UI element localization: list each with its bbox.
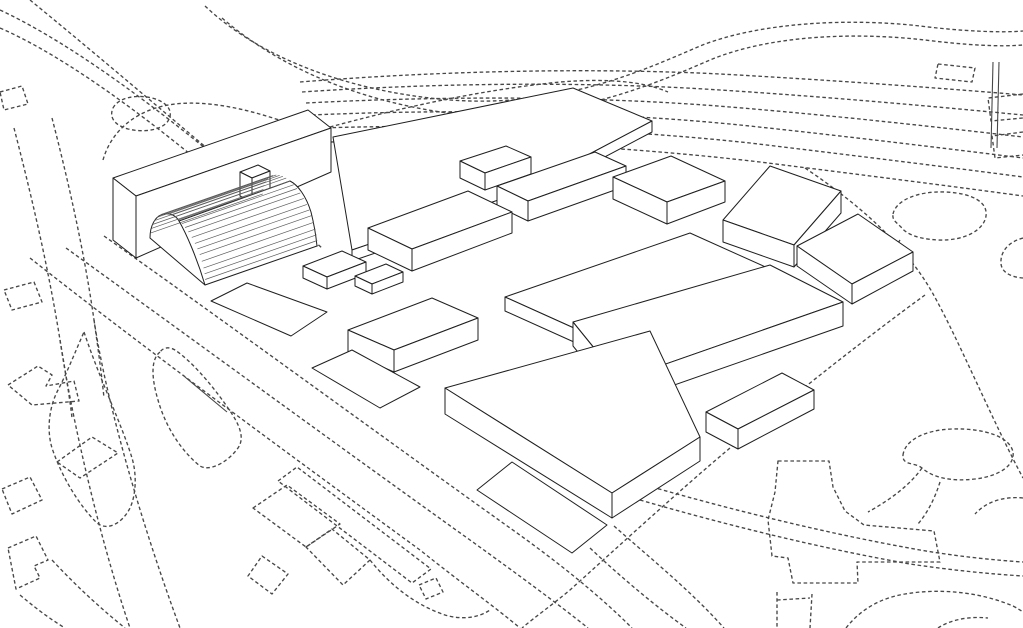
figure-wrapper — [0, 0, 1023, 628]
fork-road-2 — [590, 548, 686, 628]
curve-br-2 — [938, 617, 988, 628]
site-massing-diagram — [0, 0, 1023, 628]
bracket-right-1 — [988, 94, 1023, 121]
road-bottomright-1 — [652, 487, 1023, 562]
road-left-bottom-2 — [60, 340, 130, 628]
curve-right-edge — [1001, 238, 1023, 278]
road-bottomright-2 — [640, 500, 1023, 576]
fork-road-1 — [614, 526, 724, 628]
road-left-bottom-1 — [94, 320, 180, 628]
parcel-quad-left — [57, 437, 118, 478]
curve-br-1 — [846, 591, 1023, 628]
vline-right-1 — [991, 62, 993, 148]
teardrop-parcel — [49, 332, 135, 526]
blob-topright — [935, 64, 975, 82]
curve-right-low — [975, 498, 1023, 514]
road-bl-1 — [52, 560, 125, 628]
parcel-bl-3 — [248, 556, 288, 594]
wedge-inner-line — [185, 377, 227, 412]
parcel-bl-2 — [306, 529, 370, 585]
blob-br-tail1 — [868, 468, 922, 512]
curve-top-1 — [205, 6, 1023, 101]
pond-right — [893, 192, 986, 240]
ground-pad-vault — [211, 283, 327, 336]
drawing-canvas — [0, 0, 1023, 628]
road-left-down-1 — [52, 118, 104, 398]
road-bl-2 — [20, 595, 65, 628]
parcel-left-2 — [4, 282, 42, 310]
blob-br-tail2 — [918, 482, 940, 524]
strip-br-h — [777, 598, 810, 600]
rail-band-1 — [300, 71, 1023, 95]
curve-bottom-center — [370, 560, 490, 618]
road-left-down-2 — [14, 128, 72, 418]
strip-br-v2 — [810, 594, 812, 628]
sq-bottom-center — [419, 578, 443, 599]
blob-bottomright — [903, 429, 1013, 480]
rail-band-2 — [302, 84, 1023, 115]
strip-bottomleft — [278, 467, 431, 583]
parcel-bl-A — [2, 477, 42, 514]
parcel-bl-B — [8, 536, 48, 589]
parcel-left-1 — [0, 86, 28, 110]
